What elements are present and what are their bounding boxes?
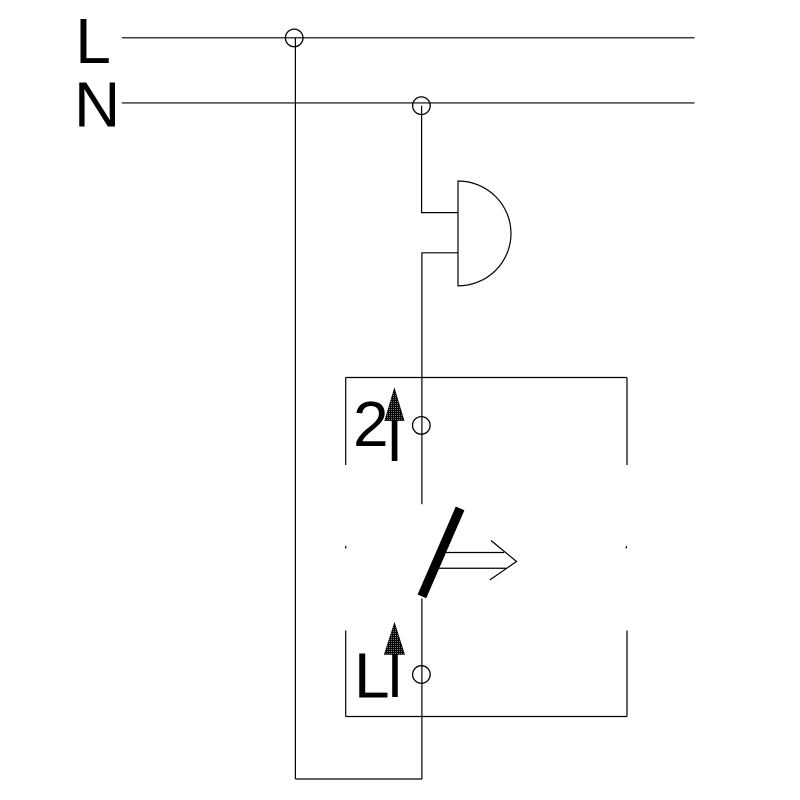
svg-text:N: N [74,69,120,141]
svg-text:L: L [75,5,111,77]
svg-text:L: L [354,640,390,712]
svg-text:2: 2 [353,388,389,460]
